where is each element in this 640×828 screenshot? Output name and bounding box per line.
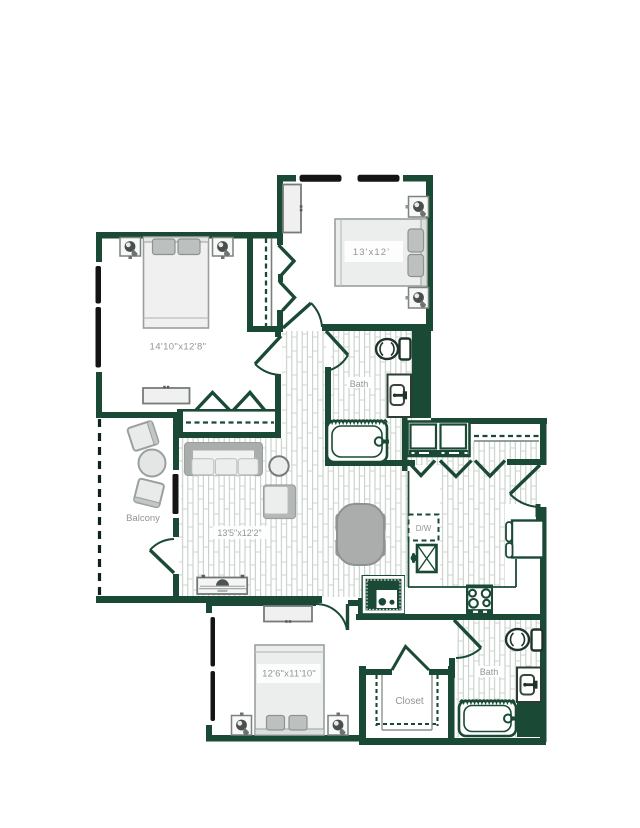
svg-text:D/W: D/W (416, 524, 432, 533)
svg-text:13'x12': 13'x12' (353, 247, 390, 258)
svg-text:12'6"x11'10": 12'6"x11'10" (262, 669, 316, 680)
svg-text:Bath: Bath (350, 379, 369, 389)
svg-text:Bath: Bath (480, 667, 499, 677)
svg-text:Balcony: Balcony (126, 513, 160, 524)
svg-text:14'10"x12'8": 14'10"x12'8" (150, 342, 207, 353)
svg-text:Closet: Closet (395, 696, 424, 707)
svg-text:13'5"x12'2": 13'5"x12'2" (217, 528, 261, 538)
